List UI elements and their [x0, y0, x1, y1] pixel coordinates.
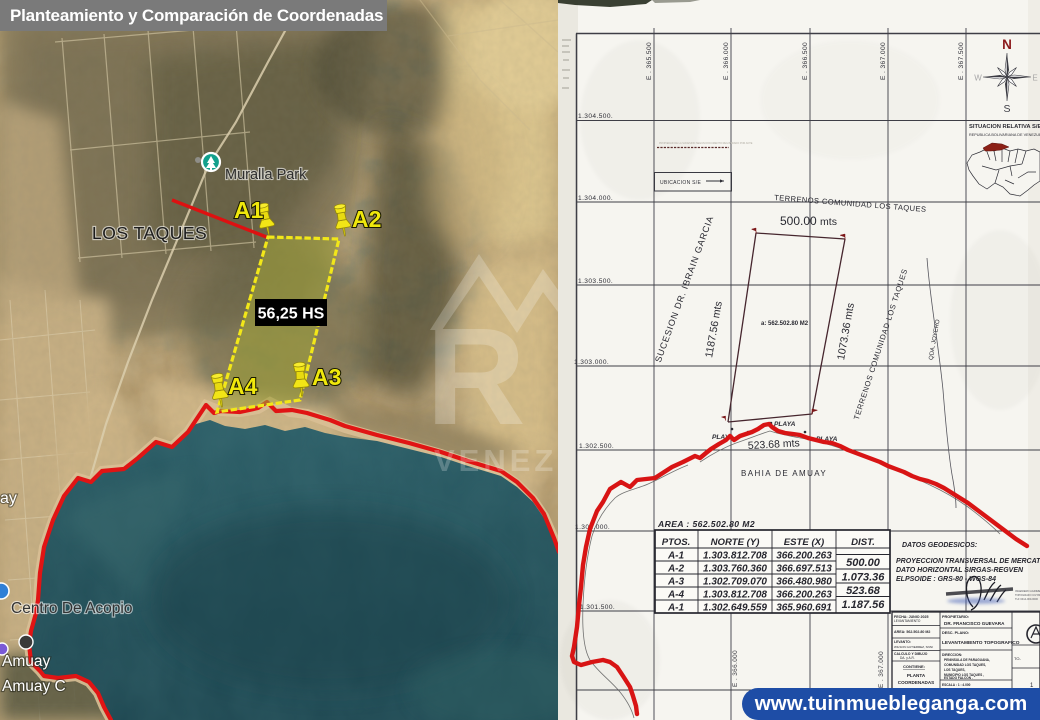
svg-text:AREA : 562.502.80 M2: AREA : 562.502.80 M2: [657, 519, 755, 529]
svg-text:A-1: A-1: [667, 603, 685, 614]
svg-text:BAHIA DE AMUAY: BAHIA DE AMUAY: [741, 469, 827, 478]
svg-text:S: S: [1003, 103, 1010, 115]
svg-text:1.303.812.708: 1.303.812.708: [703, 590, 767, 601]
svg-text:1.304.000.: 1.304.000.: [578, 195, 613, 202]
svg-text:A-2: A-2: [667, 564, 685, 575]
svg-text:N: N: [1002, 37, 1012, 52]
svg-text:TO-: TO-: [1014, 656, 1021, 661]
svg-text:1.303.000.: 1.303.000.: [574, 359, 609, 366]
svg-text:1.303.500.: 1.303.500.: [578, 278, 613, 285]
svg-text:A1: A1: [234, 197, 264, 223]
svg-text:523.68: 523.68: [846, 585, 881, 597]
svg-text:COMUNIDAD LOS TAQUES,: COMUNIDAD LOS TAQUES,: [944, 663, 986, 667]
svg-text:500.00: 500.00: [846, 557, 881, 569]
svg-text:E . 367.500: E . 367.500: [958, 42, 965, 80]
svg-text:PLANTA: PLANTA: [907, 673, 926, 678]
svg-text:Amuay: Amuay: [2, 653, 50, 670]
svg-text:VENEZU: VENEZU: [434, 443, 558, 478]
svg-text:a: 562.502.80 M2: a: 562.502.80 M2: [761, 321, 809, 327]
svg-text:1.302.500.: 1.302.500.: [579, 443, 614, 450]
svg-text:DATOS GEODESICOS:: DATOS GEODESICOS:: [902, 542, 977, 549]
svg-text:R: R: [426, 300, 526, 454]
svg-text:E: E: [1032, 74, 1037, 83]
svg-text:1.302.709.070: 1.302.709.070: [703, 577, 767, 588]
svg-text:PLAYA: PLAYA: [774, 421, 796, 428]
svg-text:365.960.691: 365.960.691: [776, 603, 832, 614]
svg-text:1.304.500.: 1.304.500.: [578, 113, 613, 120]
svg-text:PROPIETARIO:: PROPIETARIO:: [942, 615, 969, 619]
svg-text:E . 366.000: E . 366.000: [723, 42, 730, 80]
svg-text:LEVANTAMIENTO: LEVANTAMIENTO: [894, 619, 921, 623]
svg-text:A4: A4: [228, 373, 258, 399]
svg-text:366.480.980: 366.480.980: [776, 577, 832, 588]
svg-text:LEVANTO:: LEVANTO:: [894, 640, 911, 644]
svg-text:PTOS.: PTOS.: [662, 537, 691, 548]
svg-text:366.697.513: 366.697.513: [776, 564, 832, 575]
svg-text:INGENIERO AGRIMENSOR: INGENIERO AGRIMENSOR: [1015, 589, 1040, 593]
svg-text:A-1: A-1: [667, 551, 685, 562]
svg-text:A3: A3: [312, 364, 341, 390]
svg-text:E . 367.000: E . 367.000: [878, 651, 885, 688]
svg-text:E . 366.500: E . 366.500: [802, 42, 809, 80]
svg-text:1.301.500.: 1.301.500.: [580, 604, 615, 611]
svg-text:ESTE (X): ESTE (X): [784, 537, 825, 548]
svg-text:DIRECCION:: DIRECCION:: [942, 653, 962, 657]
svg-text:WILSON GUTIERREZ, SNNI: WILSON GUTIERREZ, SNNI: [894, 645, 933, 649]
svg-text:COORDENADAS: COORDENADAS: [898, 680, 935, 685]
svg-text:1.073.36: 1.073.36: [842, 572, 886, 584]
svg-text:1.303.812.708: 1.303.812.708: [703, 551, 767, 562]
svg-text:CONTIENE:: CONTIENE:: [903, 664, 925, 669]
svg-text:AREA: 562.502.80 M2: AREA: 562.502.80 M2: [894, 630, 930, 634]
svg-text:ay: ay: [0, 490, 17, 507]
svg-text:56,25 HS: 56,25 HS: [258, 306, 325, 323]
svg-text:TOPOGRAFO CIV 80.000: TOPOGRAFO CIV 80.000: [1015, 593, 1040, 597]
svg-text:A-3: A-3: [667, 577, 685, 588]
svg-text:E . 366.000: E . 366.000: [732, 650, 739, 687]
svg-text:W: W: [974, 74, 982, 83]
svg-text:Centro De Acopio: Centro De Acopio: [11, 600, 133, 617]
svg-text:366.200.263: 366.200.263: [776, 551, 832, 562]
svg-text:A-4: A-4: [667, 590, 685, 601]
svg-text:500.00 mts: 500.00 mts: [780, 214, 837, 228]
svg-text:ESTADO FALCON .: ESTADO FALCON .: [944, 676, 973, 680]
svg-text:SITUACION RELATIVA S/E: SITUACION RELATIVA S/E: [969, 124, 1040, 130]
svg-text:DIST.: DIST.: [851, 537, 875, 548]
svg-text:366.200.263: 366.200.263: [776, 590, 832, 601]
svg-text:DESC. PLANO:: DESC. PLANO:: [942, 631, 969, 635]
svg-text:LEVANTAMIENTO TOPOGRAFICO: LEVANTAMIENTO TOPOGRAFICO: [942, 640, 1020, 646]
svg-text:1.187.56: 1.187.56: [842, 599, 886, 611]
svg-text:1.302.649.559: 1.302.649.559: [703, 603, 767, 614]
svg-text:DR. FRANCISCO GUEVARA: DR. FRANCISCO GUEVARA: [944, 621, 1005, 626]
svg-text:E . 365.500: E . 365.500: [646, 42, 653, 80]
svg-text:LOS TAQUES: LOS TAQUES: [92, 223, 207, 243]
svg-text:Muralla Park: Muralla Park: [225, 167, 307, 183]
svg-text:ELPSOIDE : GRS-80 - WGS-84: ELPSOIDE : GRS-80 - WGS-84: [896, 576, 996, 583]
svg-text:Amuay C: Amuay C: [2, 678, 66, 695]
svg-text:PENINSULA DE PARAGUANA,: PENINSULA DE PARAGUANA,: [944, 658, 990, 662]
svg-text:A2: A2: [352, 206, 381, 232]
svg-text:PROPIEDAD DE LA SUCESION SEGUN: PROPIEDAD DE LA SUCESION SEGUN DOCUMENTO…: [659, 142, 753, 145]
svg-text:LOS TAQUES,: LOS TAQUES,: [944, 668, 965, 672]
svg-text:DA. y A.R.: DA. y A.R.: [900, 656, 915, 660]
svg-text:ESCALA : 1 : 4.000: ESCALA : 1 : 4.000: [942, 683, 971, 687]
svg-text:PROYECCION TRANSVERSAL DE MERC: PROYECCION TRANSVERSAL DE MERCATOR: [896, 558, 1040, 565]
svg-text:REPUBLICA BOLIVARIANA DE VENE: REPUBLICA BOLIVARIANA DE VENEZUELA: [969, 133, 1040, 137]
svg-text:E . 367.000: E . 367.000: [880, 42, 887, 80]
svg-text:TLF 0414-000-0000: TLF 0414-000-0000: [1015, 597, 1038, 601]
svg-text:UBICACION S/E: UBICACION S/E: [660, 180, 701, 186]
svg-text:DATO HORIZONTAL SIRGAS-REGVEN: DATO HORIZONTAL SIRGAS-REGVEN: [896, 567, 1024, 574]
svg-text:NORTE (Y): NORTE (Y): [711, 537, 760, 548]
svg-text:1.303.760.360: 1.303.760.360: [703, 564, 767, 575]
